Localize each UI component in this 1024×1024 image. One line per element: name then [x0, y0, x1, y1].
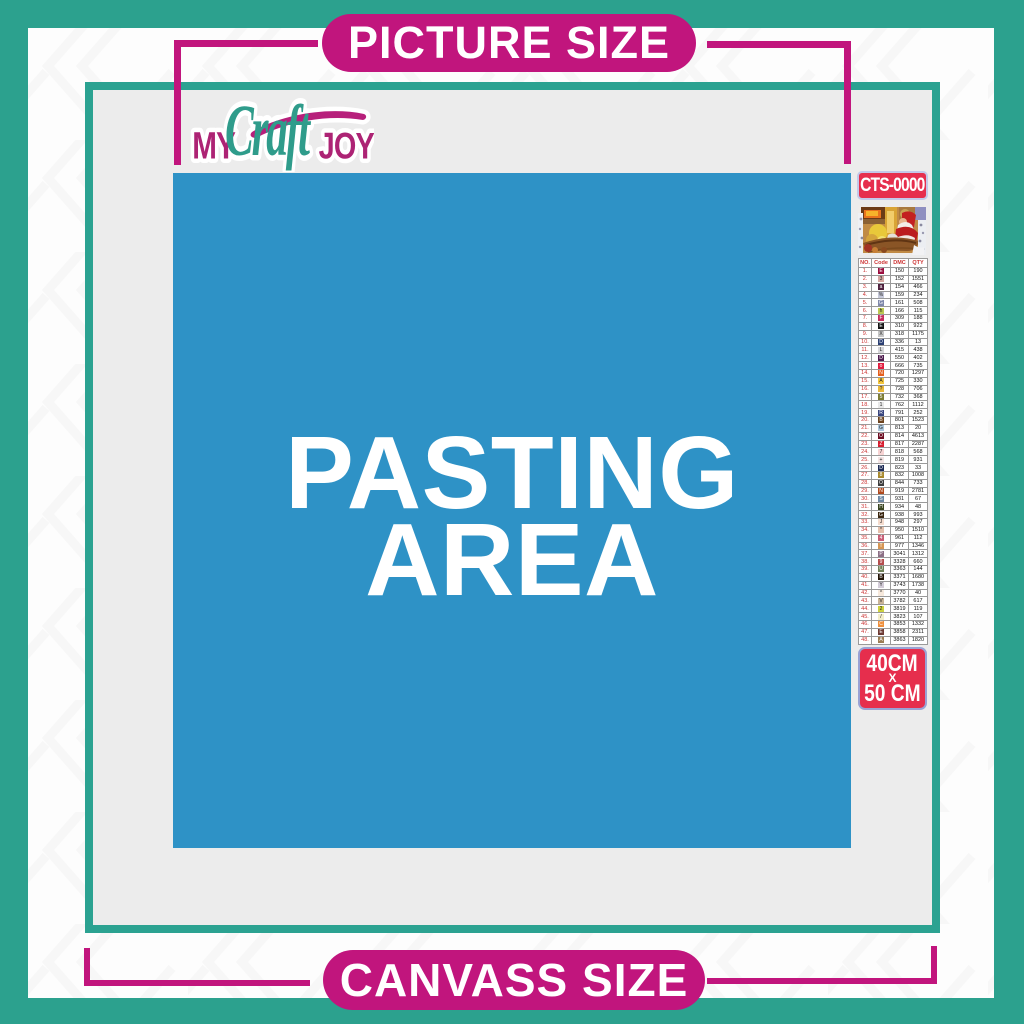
svg-text:Craft: Craft [225, 96, 312, 172]
svg-text:JOY: JOY [319, 126, 374, 167]
